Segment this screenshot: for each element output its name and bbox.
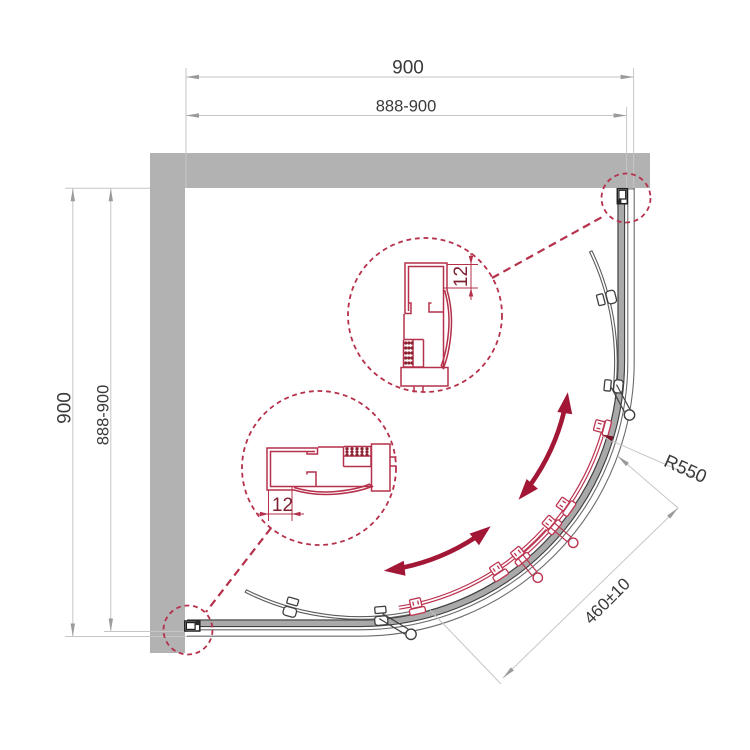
- svg-text:888-900: 888-900: [376, 98, 437, 116]
- svg-text:888-900: 888-900: [95, 385, 113, 446]
- svg-text:12: 12: [451, 266, 472, 287]
- svg-text:900: 900: [392, 58, 424, 79]
- svg-text:900: 900: [55, 392, 76, 424]
- svg-text:12: 12: [272, 495, 293, 516]
